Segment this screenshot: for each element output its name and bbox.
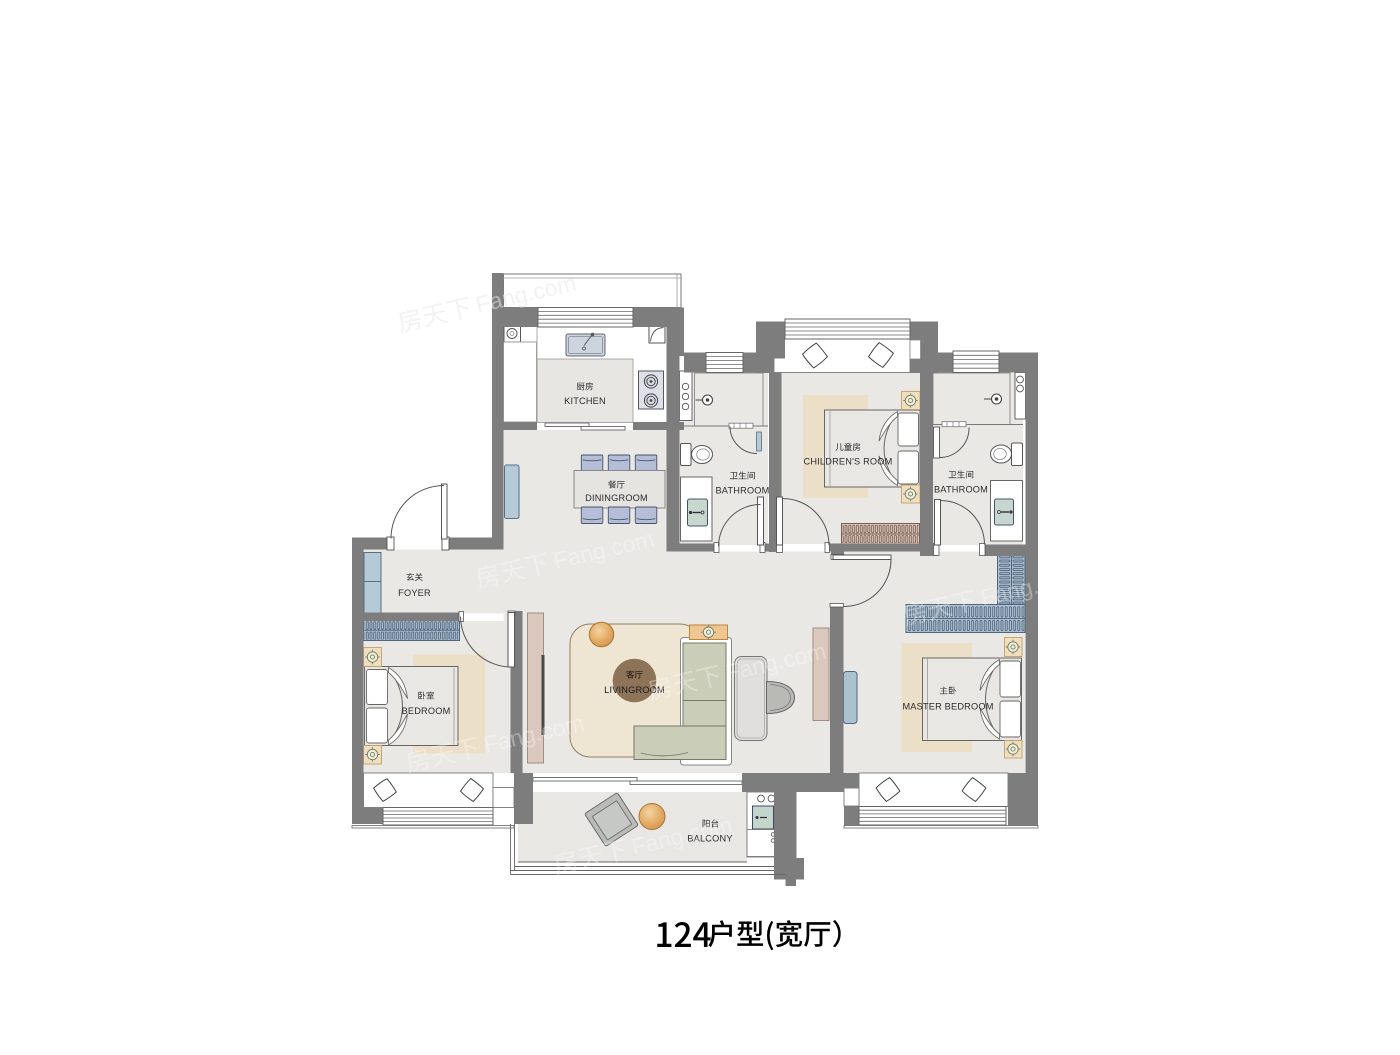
svg-text:KITCHEN: KITCHEN — [564, 396, 606, 406]
svg-text:BATHROOM: BATHROOM — [934, 485, 988, 495]
svg-text:FOYER: FOYER — [398, 588, 431, 598]
svg-text:MASTER BEDROOM: MASTER BEDROOM — [902, 702, 993, 712]
svg-text:BEDROOM: BEDROOM — [402, 706, 451, 716]
svg-text:BATHROOM: BATHROOM — [715, 486, 769, 496]
svg-text:CHILDREN'S ROOM: CHILDREN'S ROOM — [804, 457, 893, 467]
svg-text:DININGROOM: DININGROOM — [585, 493, 648, 503]
